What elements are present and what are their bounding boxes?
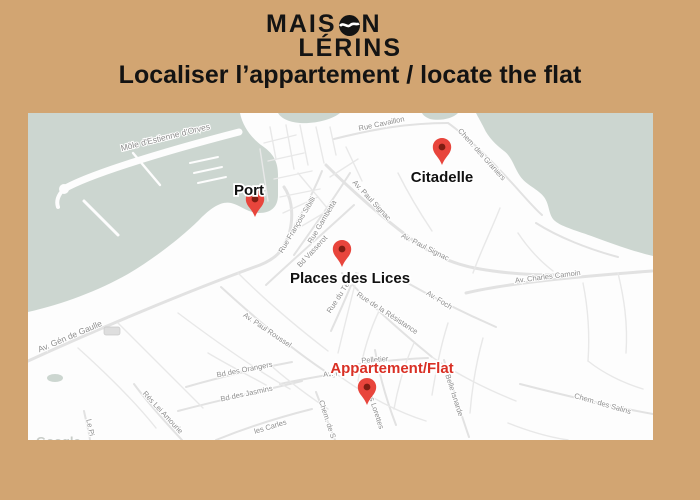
marker-appartement-label: Appartement/Flat: [330, 360, 453, 377]
marker-port-label: Port: [234, 182, 264, 199]
logo-globe-icon: [338, 14, 361, 37]
street-label: Rue Cavaillon: [358, 114, 406, 133]
page-title: Localiser l’appartement / locate the fla…: [0, 61, 700, 90]
street-label: Bd des Jasmins: [220, 384, 274, 404]
street-label: Av. Foch: [425, 288, 454, 311]
marker-citadelle-label: Citadelle: [411, 169, 474, 186]
street-label: Rue de la Résistance: [355, 290, 420, 336]
street-label: Le Pi: [84, 418, 96, 437]
marker-citadelle-pin: [433, 138, 451, 165]
street-label: Chem. des Salins: [573, 391, 632, 416]
flyer: MAIS N LÉRINS Localiser l’appartement / …: [0, 0, 700, 500]
street-label: Av. Gén de Gaulle: [36, 318, 103, 354]
street-label: Av. Paul Signac: [400, 231, 451, 263]
street-label: Av. Charles Camoin: [514, 268, 581, 285]
marker-places-des-lices-pin: [333, 240, 351, 267]
street-label: Chem. de S: [317, 399, 338, 439]
street-label: Av. Paul Signac: [351, 178, 393, 223]
street-label: Belle Isnarde: [443, 373, 465, 417]
marker-places-des-lices-label: Places des Lices: [290, 270, 410, 287]
road-shield: [104, 327, 120, 335]
logo: MAIS N LÉRINS: [266, 10, 402, 63]
street-label: Rés Lei Amourie: [141, 389, 185, 435]
google-watermark: Google: [36, 434, 81, 440]
map-image: Môle d'Estienne d'Orves Rue Cavaillon Ch…: [28, 113, 653, 440]
